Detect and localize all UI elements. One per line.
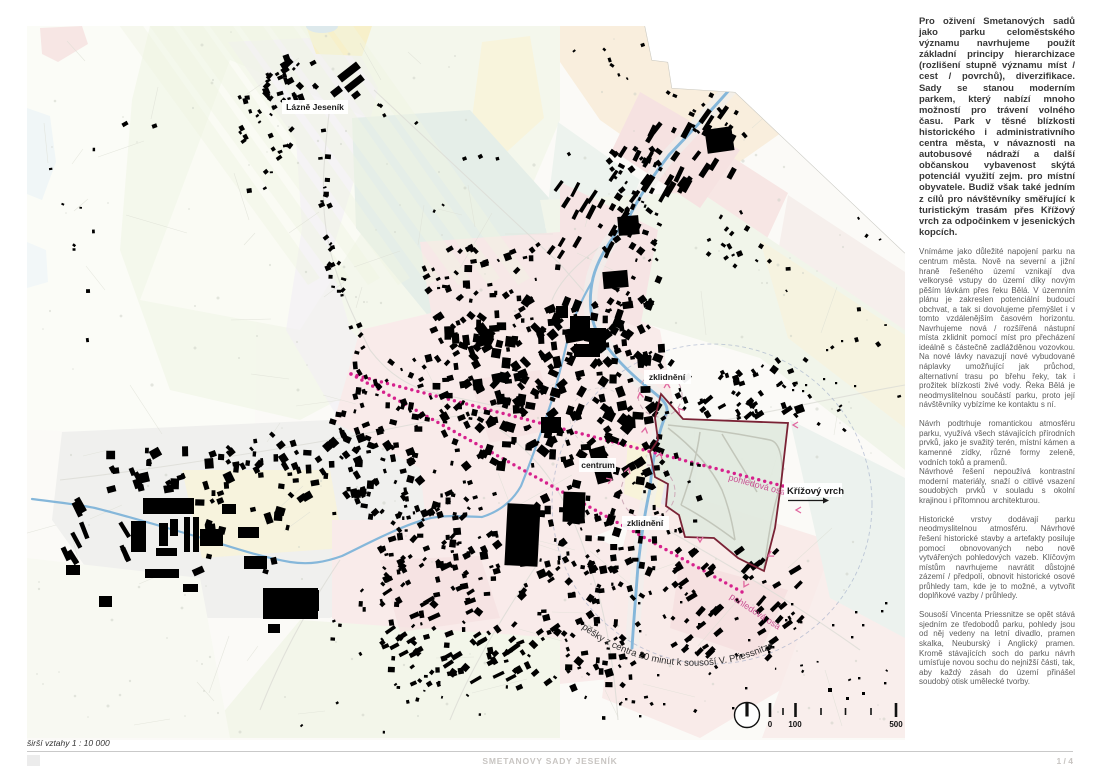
svg-text:0: 0 xyxy=(768,720,773,729)
svg-text:zklidnění: zklidnění xyxy=(649,372,686,382)
svg-text:100: 100 xyxy=(788,720,802,729)
svg-text:500: 500 xyxy=(889,720,903,729)
svg-text:zklidnění: zklidnění xyxy=(627,518,664,528)
svg-text:Křížový vrch: Křížový vrch xyxy=(787,486,844,497)
svg-text:Lázně Jeseník: Lázně Jeseník xyxy=(286,102,344,112)
svg-text:centrum: centrum xyxy=(581,460,615,470)
